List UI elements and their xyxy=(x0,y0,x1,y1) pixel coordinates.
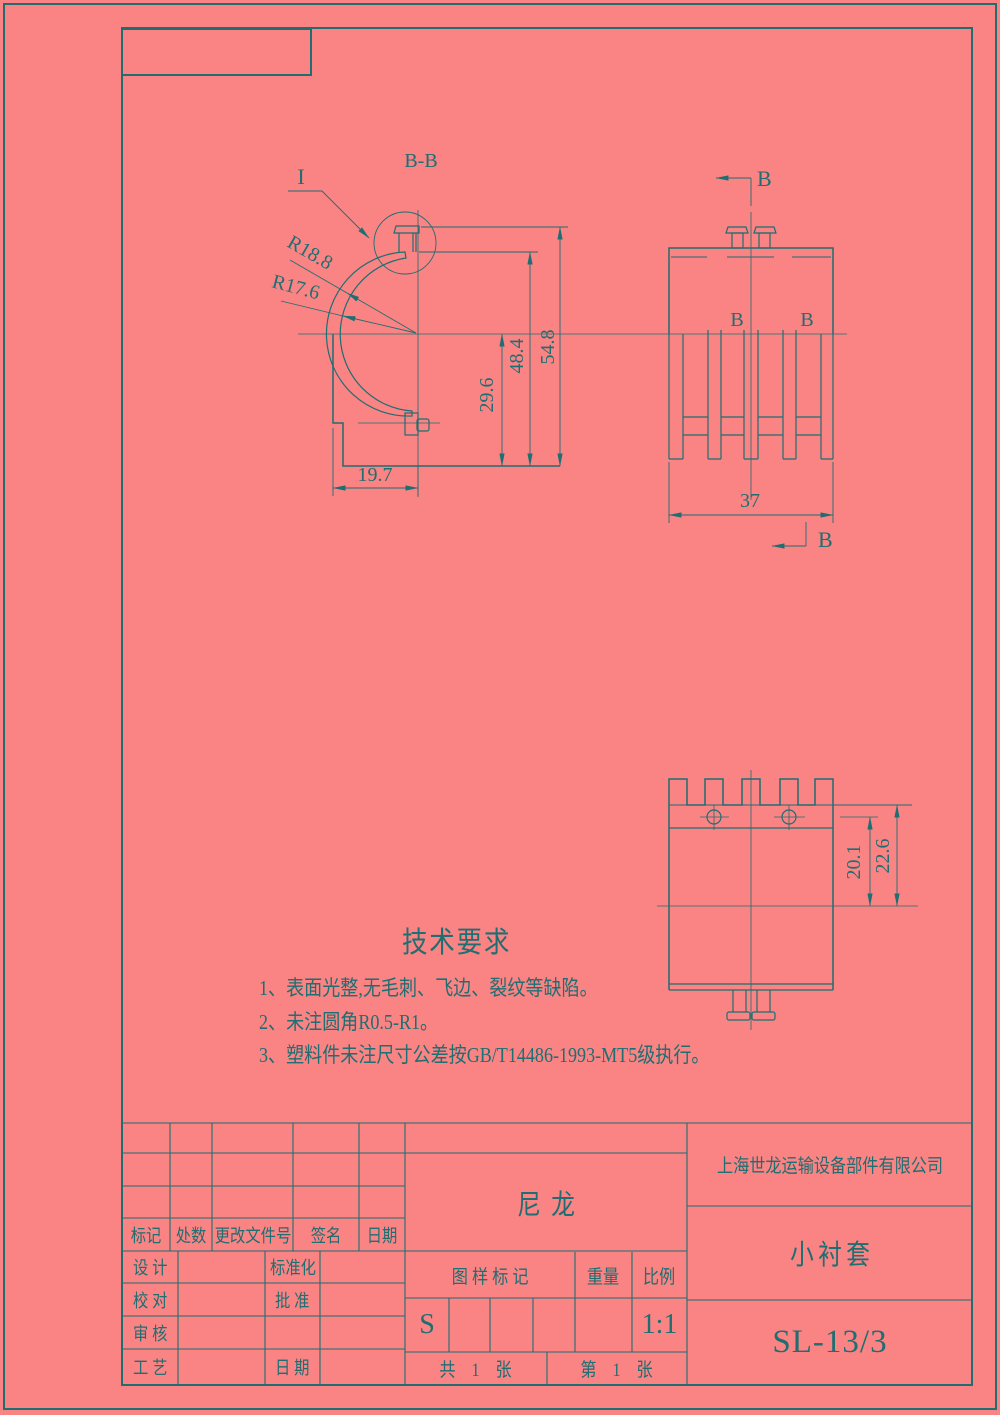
radius-leader-inner-tail xyxy=(281,301,343,316)
revision-header-date: 日期 xyxy=(359,1218,405,1251)
side-view-bottom xyxy=(657,770,918,1030)
label: 签名 xyxy=(311,1222,342,1248)
label: 设 计 xyxy=(133,1254,167,1280)
label: 批 准 xyxy=(275,1287,309,1313)
label: 工 艺 xyxy=(133,1354,167,1380)
sheet-index: 第 1 张 xyxy=(547,1352,687,1384)
label: 更改文件号 xyxy=(214,1222,291,1248)
dim-text-r17-6: R17.6 xyxy=(270,271,322,305)
revision-header-count: 处数 xyxy=(170,1218,212,1251)
bottom-tab-cap-right xyxy=(752,1012,775,1020)
role-standardization: 标准化 xyxy=(265,1251,320,1283)
revision-header-signature: 签名 xyxy=(293,1218,359,1251)
label: 日 期 xyxy=(275,1354,309,1380)
company-name: 上海世龙运输设备部件有限公司 xyxy=(688,1123,972,1206)
label: 处数 xyxy=(176,1222,207,1248)
revision-header-mark: 标记 xyxy=(122,1218,170,1251)
label: 图 样 标 记 xyxy=(452,1262,529,1289)
label: 日期 xyxy=(367,1222,398,1248)
stamp-value: S xyxy=(405,1298,449,1352)
radius-leader-outer xyxy=(347,293,416,333)
dim-text-29-6: 29.6 xyxy=(476,378,498,413)
section-letter-inner-left: B xyxy=(730,309,743,331)
role-design: 设 计 xyxy=(122,1251,178,1283)
stamp-label: 图 样 标 记 xyxy=(405,1252,575,1298)
weight-label: 重量 xyxy=(575,1252,632,1298)
sheet-total: 共 1 张 xyxy=(405,1352,547,1384)
tech-requirements-title: 技术要求 xyxy=(402,919,511,961)
label: 审 核 xyxy=(133,1320,167,1346)
dim-text-19-7: 19.7 xyxy=(358,464,393,486)
label: 重量 xyxy=(587,1262,619,1289)
bottom-tab-cap-left xyxy=(727,1012,750,1020)
foot-tab xyxy=(417,419,429,431)
label: 标准化 xyxy=(270,1254,316,1280)
tech-requirement-item: 3、塑料件未注尺寸公差按GB/T14486-1993-MT5级执行。 xyxy=(259,1039,709,1069)
bottom-tab-stems xyxy=(733,990,770,1012)
value: 第 1 张 xyxy=(581,1355,653,1382)
value: 上海世龙运输设备部件有限公司 xyxy=(717,1151,943,1178)
section-letter-top: B xyxy=(757,166,772,191)
scale-value: 1:1 xyxy=(632,1298,687,1352)
role-review: 审 核 xyxy=(122,1316,178,1349)
role-date: 日 期 xyxy=(265,1349,320,1384)
dim-text-48-4: 48.4 xyxy=(506,339,528,374)
dim-text-22-6: 22.6 xyxy=(872,839,894,874)
role-proofread: 校 对 xyxy=(122,1283,178,1316)
dimension-lines xyxy=(281,178,897,906)
value: 尼龙 xyxy=(507,1183,585,1223)
label: 校 对 xyxy=(133,1287,167,1313)
value: 小衬套 xyxy=(786,1233,874,1273)
section-view-title: B-B xyxy=(404,150,437,172)
label: 比例 xyxy=(643,1262,675,1289)
dim-text-r18-8: R18.8 xyxy=(284,231,337,274)
scale-label: 比例 xyxy=(632,1252,687,1298)
blueprint-page: { "colors": { "background": "#fa8383", "… xyxy=(0,0,1000,1415)
dim-text-54-8: 54.8 xyxy=(537,330,559,365)
radius-leader-inner xyxy=(343,316,416,333)
drawing-number: SL-13/3 xyxy=(688,1300,972,1384)
tab-cap-left xyxy=(726,227,748,233)
dim-text-20-1: 20.1 xyxy=(843,845,865,880)
role-approve: 批 准 xyxy=(265,1283,320,1316)
side-view-top xyxy=(669,212,833,500)
section-letter-bottom: B xyxy=(818,527,833,552)
tab-stem-left xyxy=(732,233,743,248)
part-name: 小衬套 xyxy=(688,1206,972,1300)
role-process: 工 艺 xyxy=(122,1349,178,1384)
value: SL-13/3 xyxy=(772,1324,887,1361)
clip-cap xyxy=(394,226,419,233)
tech-requirement-item: 1、表面光整,无毛刺、飞边、裂纹等缺陷。 xyxy=(259,972,598,1002)
tab-cap-right xyxy=(754,227,776,233)
dim-text-37: 37 xyxy=(740,490,760,512)
detail-circle xyxy=(374,212,436,274)
value: 共 1 张 xyxy=(440,1355,512,1382)
tech-requirement-item: 2、未注圆角R0.5-R1。 xyxy=(259,1006,438,1036)
label: 标记 xyxy=(131,1222,162,1248)
section-letter-inner-right: B xyxy=(800,309,813,331)
detail-leader xyxy=(288,191,369,238)
value: 1:1 xyxy=(642,1309,678,1341)
detail-label: I xyxy=(297,164,304,189)
hole-crosshairs xyxy=(700,805,878,830)
clip-stem xyxy=(399,233,416,252)
value: S xyxy=(419,1309,435,1341)
section-view-bb xyxy=(298,210,847,497)
rib-webs xyxy=(683,417,821,435)
tab-stem-right xyxy=(759,233,770,248)
revision-header-file-no: 更改文件号 xyxy=(212,1218,293,1251)
material-name: 尼龙 xyxy=(405,1153,687,1252)
